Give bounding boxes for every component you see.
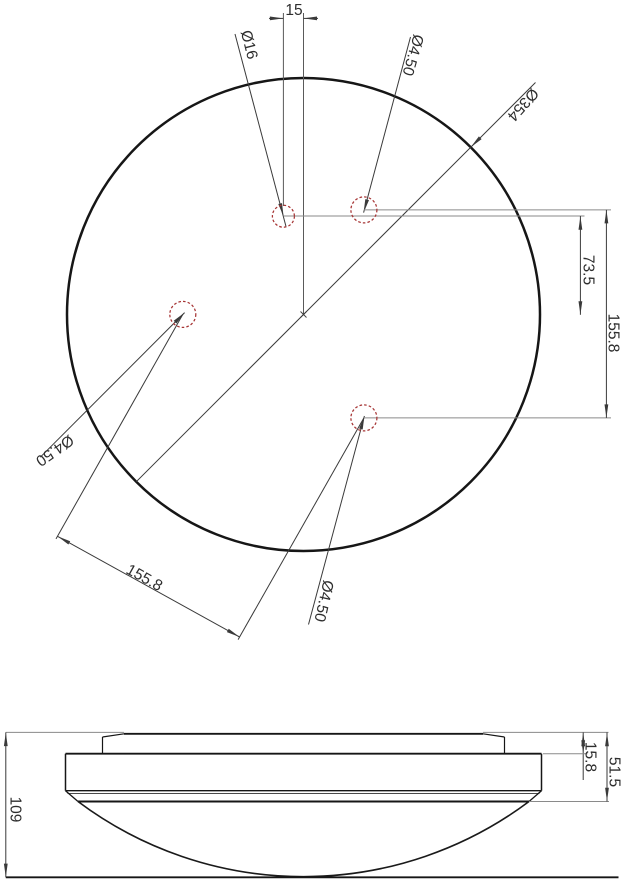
svg-text:155.8: 155.8 bbox=[123, 561, 165, 595]
svg-text:51.5: 51.5 bbox=[606, 757, 623, 787]
svg-text:Ø354: Ø354 bbox=[503, 85, 541, 125]
svg-text:15: 15 bbox=[285, 2, 302, 19]
svg-text:155.8: 155.8 bbox=[605, 314, 622, 353]
svg-text:109: 109 bbox=[7, 797, 24, 823]
svg-text:Ø4.50: Ø4.50 bbox=[398, 32, 426, 78]
svg-text:15.8: 15.8 bbox=[582, 742, 599, 772]
svg-text:73.5: 73.5 bbox=[580, 255, 597, 285]
svg-text:Ø4.50: Ø4.50 bbox=[32, 431, 77, 469]
